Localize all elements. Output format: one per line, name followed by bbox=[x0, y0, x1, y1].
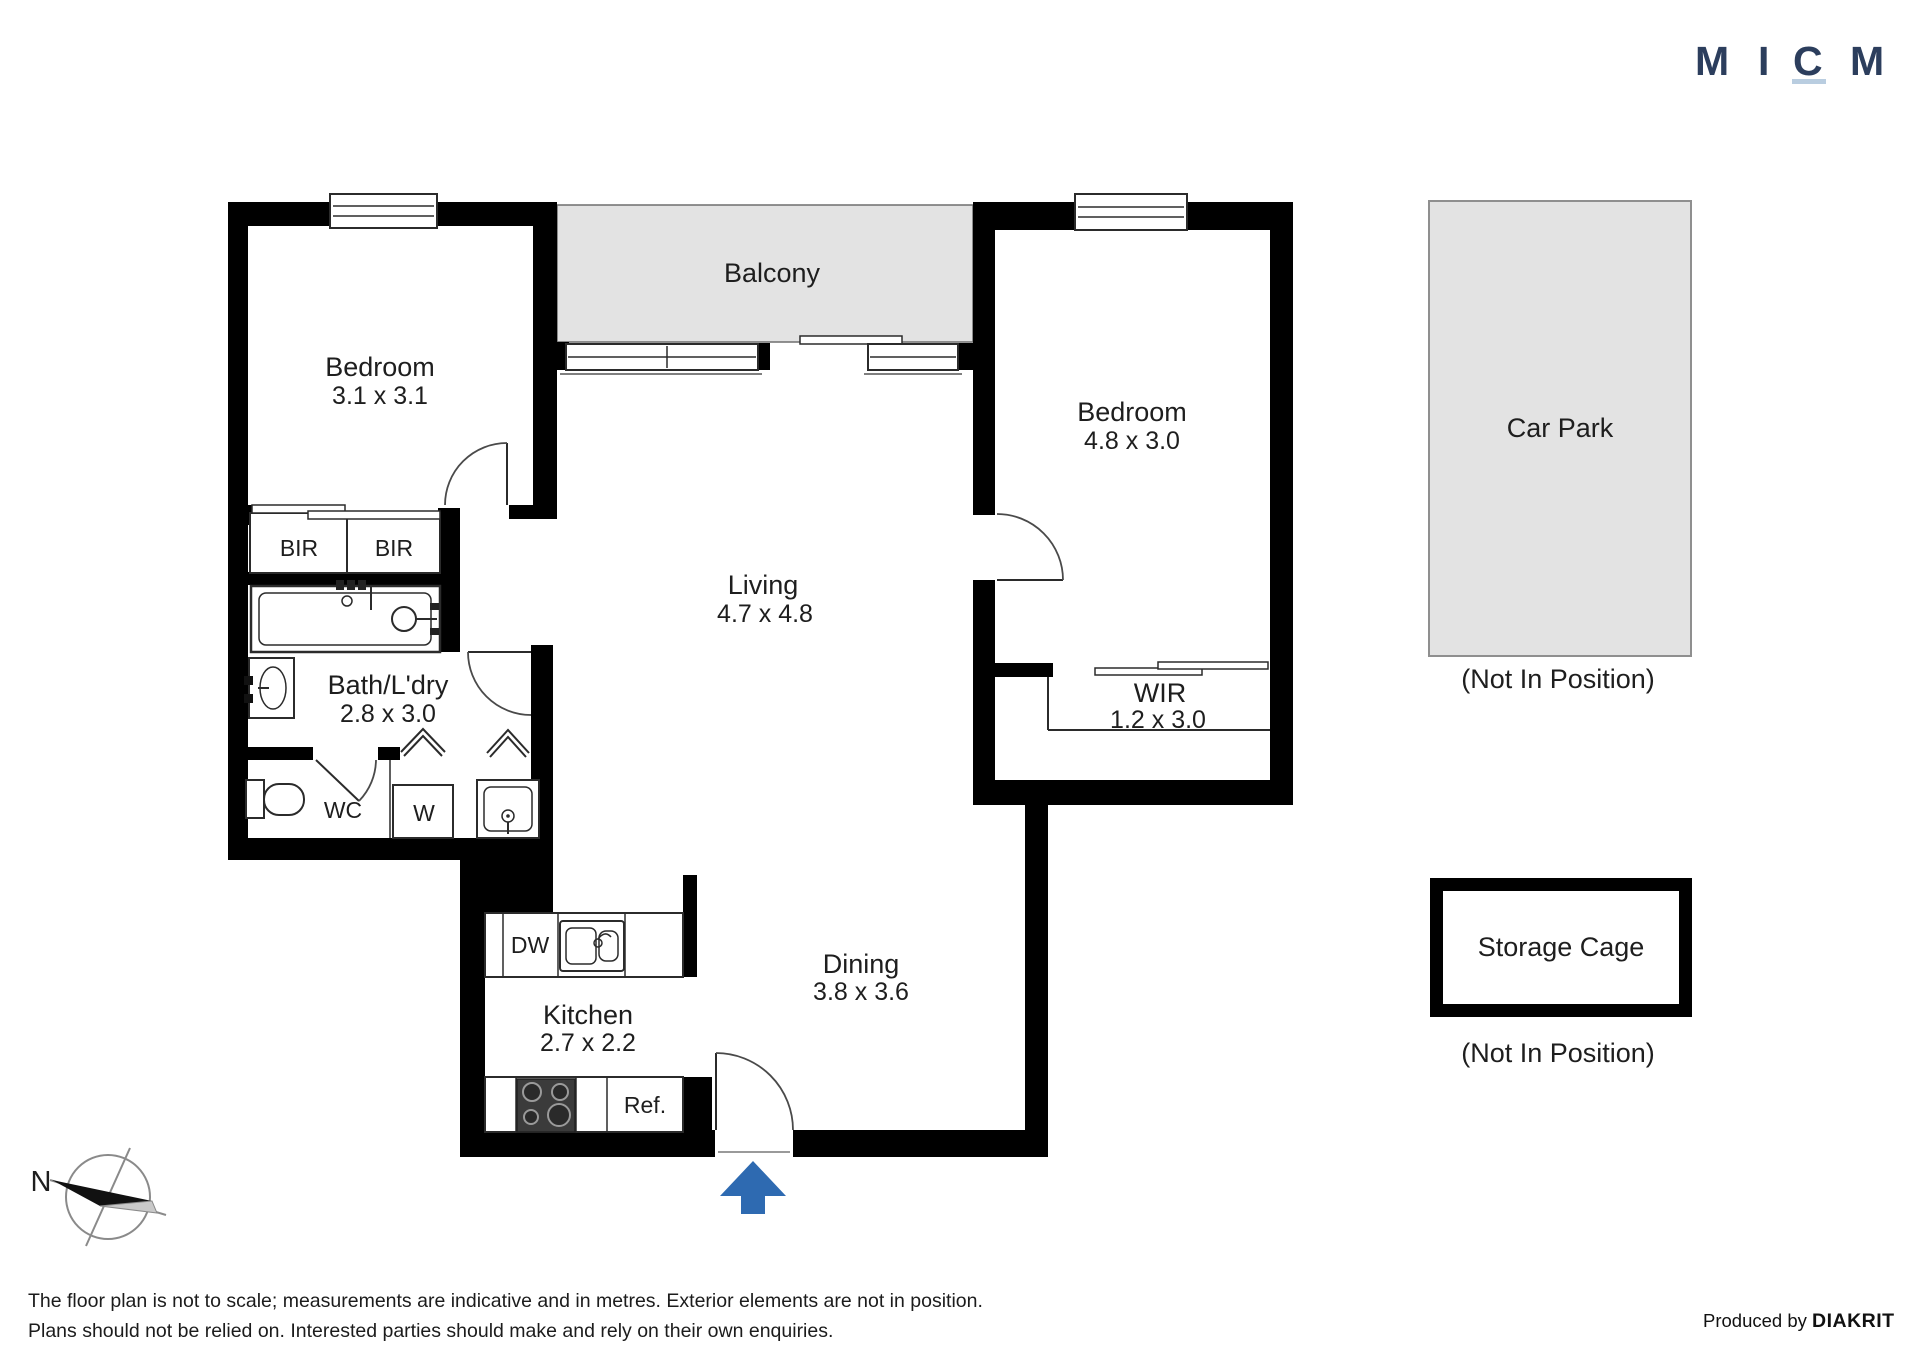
vanity-basin-icon bbox=[244, 658, 294, 718]
wir-sliding-doors-icon bbox=[1095, 662, 1268, 675]
dining-label: Dining bbox=[823, 949, 900, 979]
bedroom1-door-icon bbox=[445, 443, 507, 505]
bathtub-icon bbox=[251, 580, 440, 652]
car-park-area: Car Park bbox=[1428, 200, 1692, 657]
toilet-icon bbox=[246, 780, 304, 818]
storage-cage-area: Storage Cage bbox=[1430, 878, 1692, 1017]
kitchen-label: Kitchen bbox=[543, 1000, 633, 1030]
bedroom2-door-icon bbox=[997, 514, 1063, 580]
dishwasher-label: DW bbox=[511, 932, 550, 958]
living-window-right-icon bbox=[864, 344, 962, 374]
bir-left-label: BIR bbox=[280, 535, 318, 561]
entry-door-icon bbox=[716, 1053, 793, 1152]
balcony-label: Balcony bbox=[724, 258, 821, 288]
fridge-label: Ref. bbox=[624, 1092, 666, 1118]
bedroom2-window-icon bbox=[1075, 194, 1187, 230]
bifold-door-right-icon bbox=[487, 730, 529, 757]
wc-door-icon bbox=[316, 760, 376, 801]
car-park-label: Car Park bbox=[1507, 413, 1614, 444]
cooktop-icon bbox=[517, 1079, 575, 1132]
washer-label: W bbox=[413, 800, 435, 826]
bedroom2-label: Bedroom bbox=[1077, 397, 1187, 427]
bath-door-icon bbox=[468, 652, 531, 715]
wir-dims: 1.2 x 3.0 bbox=[1110, 706, 1206, 734]
laundry-trough-icon bbox=[477, 780, 539, 838]
storage-cage-note: (Not In Position) bbox=[1408, 1038, 1708, 1069]
floorplan-page: Balcony Bedroom 3.1 x 3.1 Bedroom 4.8 x … bbox=[0, 0, 1920, 1357]
logo-letter-m1: M bbox=[1695, 38, 1729, 85]
compass-north-label: N bbox=[31, 1166, 52, 1198]
bath-laundry-dims: 2.8 x 3.0 bbox=[340, 700, 436, 728]
logo-letter-m2: M bbox=[1850, 38, 1884, 85]
storage-cage-label: Storage Cage bbox=[1478, 932, 1645, 963]
room-labels: Balcony Bedroom 3.1 x 3.1 Bedroom 4.8 x … bbox=[280, 258, 1206, 1118]
bedroom1-label: Bedroom bbox=[325, 352, 435, 382]
wir-label: WIR bbox=[1134, 678, 1186, 708]
bedroom2-dims: 4.8 x 3.0 bbox=[1084, 427, 1180, 455]
bir-right-label: BIR bbox=[375, 535, 413, 561]
living-sliding-door-icon bbox=[800, 336, 902, 344]
disclaimer-line-1: The floor plan is not to scale; measurem… bbox=[28, 1286, 1188, 1316]
dining-dims: 3.8 x 3.6 bbox=[813, 978, 909, 1006]
wc-label: WC bbox=[324, 797, 362, 823]
bedroom1-dims: 3.1 x 3.1 bbox=[332, 382, 428, 410]
living-label: Living bbox=[728, 570, 799, 600]
compass-icon: N bbox=[31, 1148, 166, 1246]
bedroom1-window-icon bbox=[330, 194, 437, 228]
bath-laundry-label: Bath/L'dry bbox=[328, 670, 449, 700]
entry-arrow-icon bbox=[720, 1161, 786, 1214]
living-window-left-icon bbox=[560, 344, 762, 374]
logo-underline bbox=[1792, 79, 1826, 84]
credit-prefix: Produced by bbox=[1703, 1310, 1812, 1331]
kitchen-dims: 2.7 x 2.2 bbox=[540, 1029, 636, 1057]
disclaimer-line-2: Plans should not be relied on. Intereste… bbox=[28, 1316, 1188, 1346]
living-dims: 4.7 x 4.8 bbox=[717, 600, 813, 628]
logo-letter-i: I bbox=[1758, 38, 1769, 85]
bifold-door-left-icon bbox=[401, 729, 445, 756]
producer-credit: Produced by DIAKRIT bbox=[1703, 1310, 1895, 1333]
credit-brand: DIAKRIT bbox=[1812, 1310, 1895, 1332]
car-park-note: (Not In Position) bbox=[1408, 664, 1708, 695]
disclaimer-text: The floor plan is not to scale; measurem… bbox=[28, 1286, 1188, 1346]
logo-letter-c: C bbox=[1793, 38, 1823, 85]
kitchen-sink-icon bbox=[560, 921, 624, 971]
